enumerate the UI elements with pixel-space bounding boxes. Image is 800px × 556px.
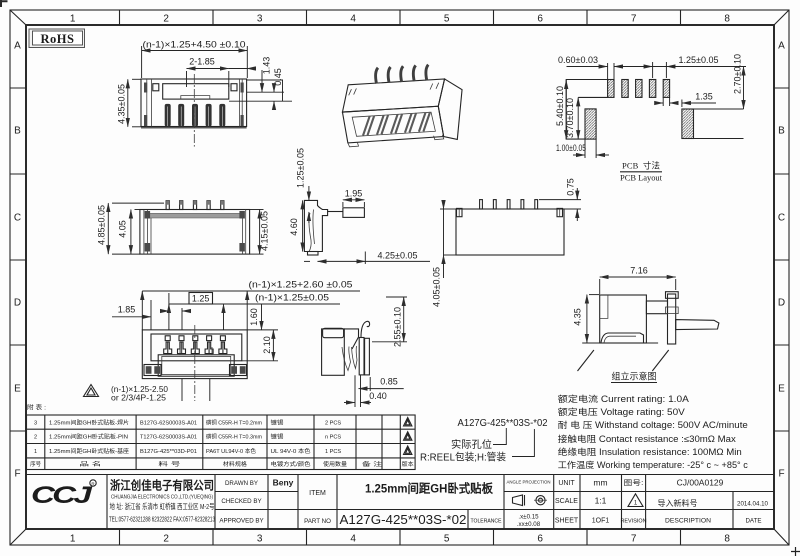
svg-text:CJ/00A0129: CJ/00A0129 (677, 478, 724, 488)
svg-text:使用数量: 使用数量 (323, 460, 347, 468)
svg-text:3: 3 (257, 14, 263, 25)
svg-text:.x±0.15: .x±0.15 (518, 514, 539, 521)
svg-text:TEL:0577-62321288 62322822 FAX: TEL:0577-62321288 62322822 FAX:0577-6232… (109, 517, 215, 524)
svg-text:1.25: 1.25 (192, 294, 210, 304)
svg-text:C: C (14, 213, 21, 224)
svg-text:A127G-425**03S-*02: A127G-425**03S-*02 (340, 513, 467, 527)
svg-text:1.25mm间距GH卧式贴板-PIN: 1.25mm间距GH卧式贴板-PIN (49, 433, 128, 441)
svg-text:or 2/3/4P-1.25: or 2/3/4P-1.25 (111, 394, 167, 403)
svg-text:镀锡: 镀锡 (271, 433, 284, 441)
svg-text:磷铜 C55R-H T=0.2mm: 磷铜 C55R-H T=0.2mm (206, 418, 262, 426)
svg-text:1.25mm间距GH卧式贴板: 1.25mm间距GH卧式贴板 (365, 481, 494, 496)
svg-text:A: A (14, 41, 21, 52)
svg-text:CHECKED BY: CHECKED BY (221, 498, 261, 505)
svg-text:1.25±0.05: 1.25±0.05 (295, 148, 305, 188)
svg-text:CCJ: CCJ (31, 482, 93, 509)
svg-text:B: B (14, 126, 21, 137)
svg-text:1.43: 1.43 (262, 57, 272, 75)
svg-text:绝缘电阻 Insulation resistance: 10: 绝缘电阻 Insulation resistance: 100MΩ Min (558, 446, 742, 457)
svg-text:1.25mm间距GH卧式贴板-焊片: 1.25mm间距GH卧式贴板-焊片 (49, 418, 129, 426)
svg-text:A127G-425**03S-*02: A127G-425**03S-*02 (458, 418, 548, 429)
svg-text:5: 5 (444, 534, 450, 545)
svg-text:1.85: 1.85 (118, 305, 136, 315)
svg-text:n PCS: n PCS (325, 435, 341, 441)
svg-text:4: 4 (350, 14, 356, 25)
svg-text:实际孔位: 实际孔位 (451, 438, 492, 451)
svg-text:1: 1 (70, 14, 76, 25)
svg-text:1: 1 (70, 534, 76, 545)
svg-text:1 PCS: 1 PCS (325, 449, 341, 455)
svg-text:备 注: 备 注 (362, 460, 383, 468)
svg-text:PCB Layout: PCB Layout (620, 173, 663, 183)
svg-text:Beny: Beny (273, 478, 294, 488)
svg-text:R:REEL包装;H:管装: R:REEL包装;H:管装 (420, 451, 506, 464)
svg-text:B: B (778, 126, 785, 137)
svg-text:REVISION: REVISION (621, 519, 647, 525)
svg-text:8: 8 (724, 534, 730, 545)
svg-text:图号:: 图号: (624, 479, 644, 487)
svg-text:组立示意图: 组立示意图 (612, 371, 657, 382)
svg-text:1.35: 1.35 (695, 92, 713, 102)
svg-text:1: 1 (34, 449, 37, 455)
svg-text:DESCRIPTION: DESCRIPTION (665, 518, 711, 525)
svg-text:品 名: 品 名 (79, 460, 101, 468)
svg-text:4.05±0.05: 4.05±0.05 (432, 267, 442, 307)
svg-text:T127G-62S0003S-A01: T127G-62S0003S-A01 (140, 435, 197, 441)
svg-text:浙江创佳电子有限公司: 浙江创佳电子有限公司 (110, 478, 214, 493)
svg-text:4.60: 4.60 (289, 218, 299, 236)
svg-text:材料规格: 材料规格 (223, 460, 247, 468)
svg-text:5.40±0.10: 5.40±0.10 (555, 86, 565, 126)
svg-text:APPROVED BY: APPROVED BY (219, 518, 263, 525)
svg-text:2014.04.10: 2014.04.10 (737, 501, 769, 508)
svg-text:工作温度 Working temperature: -25°: 工作温度 Working temperature: -25° c ~ +85° … (558, 459, 749, 470)
svg-text:UL 94V-0 本色: UL 94V-0 本色 (271, 447, 311, 455)
svg-text:D: D (778, 298, 785, 309)
svg-text:料 号: 料 号 (158, 460, 181, 468)
svg-text:0.40: 0.40 (369, 391, 387, 401)
svg-text:ITEM: ITEM (309, 490, 326, 497)
svg-text:电镀方式/颜色: 电镀方式/颜色 (271, 460, 311, 468)
svg-text:1OF1: 1OF1 (592, 518, 610, 525)
svg-text:(n-1)×1.25+2.60 ±0.05: (n-1)×1.25+2.60 ±0.05 (249, 279, 353, 289)
svg-text:4.15±0.05: 4.15±0.05 (260, 211, 270, 251)
svg-text:额定电压 Voltage rating: 50V: 额定电压 Voltage rating: 50V (558, 406, 685, 417)
svg-text:0.45: 0.45 (273, 68, 283, 86)
svg-text:0.60±0.03: 0.60±0.03 (558, 55, 598, 65)
svg-text:A: A (778, 41, 785, 52)
svg-text:7: 7 (631, 14, 637, 25)
svg-text:4.25±0.05: 4.25±0.05 (378, 251, 418, 261)
svg-text:附 表 :: 附 表 : (27, 404, 46, 412)
svg-text:C: C (778, 213, 785, 224)
svg-text:2: 2 (163, 534, 169, 545)
svg-text:2.70±0.10: 2.70±0.10 (733, 54, 743, 94)
svg-text:UNIT: UNIT (558, 480, 575, 487)
svg-text:2-1.85: 2-1.85 (189, 57, 215, 67)
svg-text:E: E (778, 384, 785, 395)
svg-text:1.60: 1.60 (249, 308, 259, 326)
svg-text:.xx±0.08: .xx±0.08 (517, 521, 541, 528)
svg-text:1:1: 1:1 (595, 496, 607, 506)
svg-text:D: D (14, 298, 21, 309)
svg-text:导入新料号: 导入新料号 (658, 498, 698, 508)
svg-text:PCB 寸法: PCB 寸法 (622, 161, 660, 171)
svg-text:E: E (14, 384, 21, 395)
svg-text:0.75: 0.75 (566, 178, 576, 196)
svg-text:2.10: 2.10 (262, 336, 272, 354)
svg-text:8: 8 (724, 14, 730, 25)
svg-text:PA6T UL94V-0 本色: PA6T UL94V-0 本色 (206, 447, 256, 455)
svg-text:(n-1)×1.25±0.05: (n-1)×1.25±0.05 (255, 293, 329, 303)
svg-text:2: 2 (163, 14, 169, 25)
svg-text:CHUANGJIA ELECTRONICS CO.,LTD: CHUANGJIA ELECTRONICS CO.,LTD.(YUEQING) (111, 495, 213, 501)
svg-text:mm: mm (593, 478, 607, 488)
svg-text:6: 6 (537, 534, 543, 545)
svg-text:1.25mm间距GH卧式贴板-基座: 1.25mm间距GH卧式贴板-基座 (49, 447, 129, 455)
svg-text:0.85: 0.85 (380, 377, 398, 387)
svg-text:3: 3 (257, 534, 263, 545)
svg-text:5: 5 (444, 14, 450, 25)
svg-text:额定电流 Current rating: 1.0A: 额定电流 Current rating: 1.0A (558, 393, 689, 404)
svg-text:磷铜 C55R-H T=0.3mm: 磷铜 C55R-H T=0.3mm (206, 433, 262, 441)
svg-text:6: 6 (537, 14, 543, 25)
svg-text:F: F (778, 469, 784, 480)
svg-text:(n-1)×1.25+4.50 ±0.10: (n-1)×1.25+4.50 ±0.10 (143, 40, 246, 50)
svg-text:接触电阻 Contact resistance :≤30mΩ: 接触电阻 Contact resistance :≤30mΩ Max (558, 433, 737, 444)
svg-text:B127G-425**03D-P01: B127G-425**03D-P01 (140, 449, 197, 455)
svg-text:B127G-62S0003S-A01: B127G-62S0003S-A01 (140, 420, 197, 426)
svg-text:4.85±0.05: 4.85±0.05 (97, 205, 107, 245)
svg-text:F: F (14, 469, 20, 480)
svg-text:RoHS: RoHS (41, 32, 75, 46)
svg-text:4.05: 4.05 (118, 220, 128, 238)
svg-text:2.55±0.10: 2.55±0.10 (393, 307, 403, 347)
svg-text:SHEET: SHEET (555, 518, 579, 525)
svg-text:1.25±0.05: 1.25±0.05 (679, 55, 719, 65)
svg-text:2 PCS: 2 PCS (325, 420, 341, 426)
svg-text:1.00±0.05: 1.00±0.05 (556, 143, 586, 153)
svg-text:耐 电 压 Withstand coltage: 500V: 耐 电 压 Withstand coltage: 500V AC/minute (558, 419, 748, 430)
svg-text:7: 7 (631, 534, 637, 545)
svg-text:PART NO: PART NO (304, 518, 331, 525)
svg-text:4: 4 (350, 534, 356, 545)
svg-text:版本: 版本 (402, 460, 414, 468)
svg-text:4.35: 4.35 (572, 308, 582, 326)
svg-text:3: 3 (34, 420, 37, 426)
svg-text:DATE: DATE (745, 518, 761, 525)
svg-text:4.35±0.05: 4.35±0.05 (117, 84, 127, 124)
svg-text:地 址: 浙江省 乐清市 虹桥镇 西工业区 M-2号: 地 址: 浙江省 乐清市 虹桥镇 西工业区 M-2号 (110, 501, 215, 511)
svg-text:7.16: 7.16 (630, 266, 648, 276)
svg-text:SCALE: SCALE (555, 498, 578, 505)
svg-text:2: 2 (34, 435, 37, 441)
svg-text:镀锡: 镀锡 (271, 418, 284, 426)
svg-text:1.95: 1.95 (345, 189, 363, 199)
svg-text:TOLERANCE: TOLERANCE (471, 519, 502, 525)
svg-text:序号: 序号 (30, 460, 41, 468)
svg-text:DRAWN BY: DRAWN BY (225, 480, 258, 487)
svg-text:ANGLE PROJECTION: ANGLE PROJECTION (507, 480, 551, 486)
